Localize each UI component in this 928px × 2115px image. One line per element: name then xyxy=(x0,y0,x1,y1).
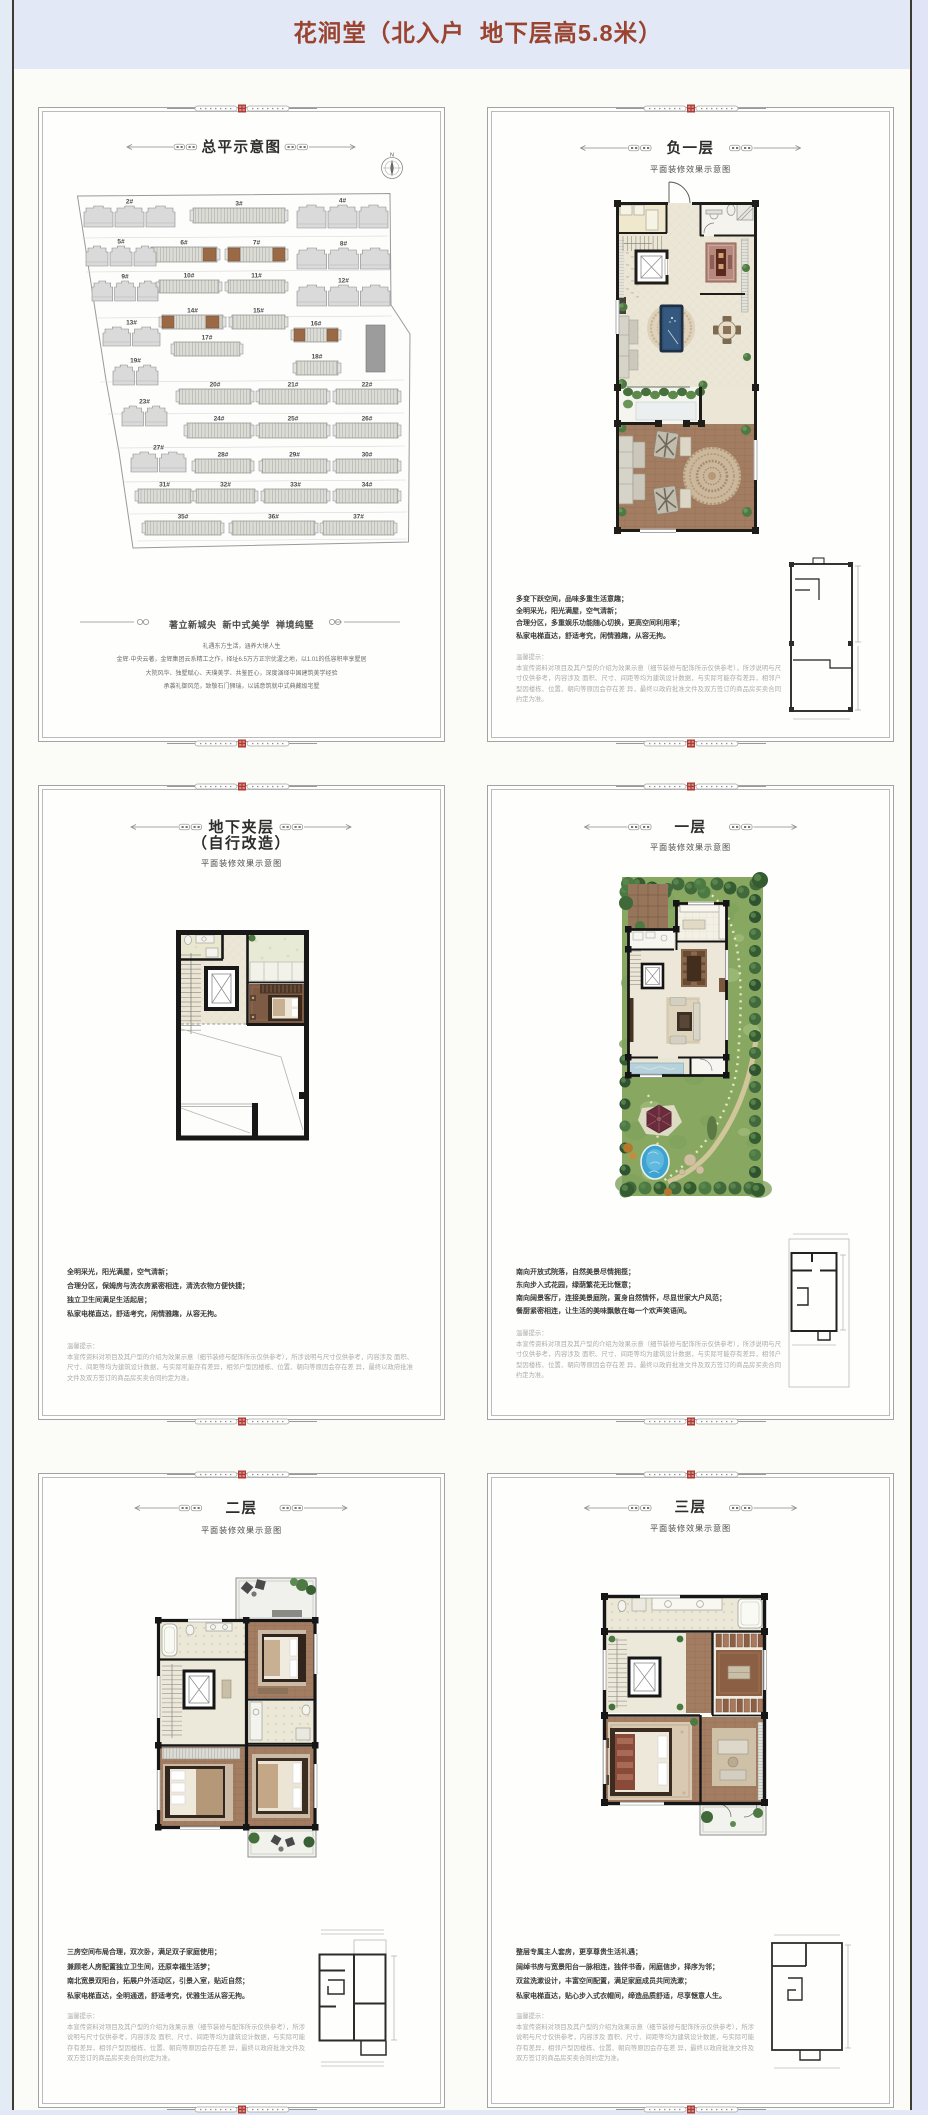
svg-text:12#: 12# xyxy=(338,278,349,285)
svg-text:5#: 5# xyxy=(117,239,125,246)
svg-text:18#: 18# xyxy=(312,354,323,361)
svg-text:26#: 26# xyxy=(362,416,373,423)
svg-text:30#: 30# xyxy=(362,452,373,459)
svg-text:13#: 13# xyxy=(126,320,137,327)
svg-text:32#: 32# xyxy=(220,482,231,489)
svg-text:7#: 7# xyxy=(253,240,261,247)
svg-text:23#: 23# xyxy=(139,399,150,406)
svg-text:31#: 31# xyxy=(159,482,170,489)
svg-text:15#: 15# xyxy=(253,308,264,315)
svg-text:20#: 20# xyxy=(210,382,221,389)
svg-text:37#: 37# xyxy=(353,514,364,521)
svg-text:25#: 25# xyxy=(288,416,299,423)
svg-text:8#: 8# xyxy=(340,241,348,248)
svg-text:11#: 11# xyxy=(251,273,262,280)
svg-text:27#: 27# xyxy=(153,445,164,452)
svg-text:2#: 2# xyxy=(126,199,134,206)
svg-text:24#: 24# xyxy=(214,416,225,423)
svg-text:16#: 16# xyxy=(311,321,322,328)
svg-text:4#: 4# xyxy=(339,198,347,205)
svg-text:14#: 14# xyxy=(187,308,198,315)
svg-text:36#: 36# xyxy=(268,514,279,521)
svg-text:33#: 33# xyxy=(290,482,301,489)
svg-text:19#: 19# xyxy=(130,358,141,365)
svg-text:10#: 10# xyxy=(184,273,195,280)
svg-text:21#: 21# xyxy=(288,382,299,389)
svg-text:35#: 35# xyxy=(178,514,189,521)
svg-text:29#: 29# xyxy=(289,452,300,459)
svg-text:34#: 34# xyxy=(362,482,373,489)
svg-text:22#: 22# xyxy=(362,382,373,389)
svg-text:6#: 6# xyxy=(180,240,188,247)
svg-text:17#: 17# xyxy=(202,335,213,342)
svg-text:3#: 3# xyxy=(235,201,243,208)
svg-text:28#: 28# xyxy=(218,452,229,459)
svg-text:9#: 9# xyxy=(121,274,129,281)
svg-text:N: N xyxy=(390,153,394,159)
